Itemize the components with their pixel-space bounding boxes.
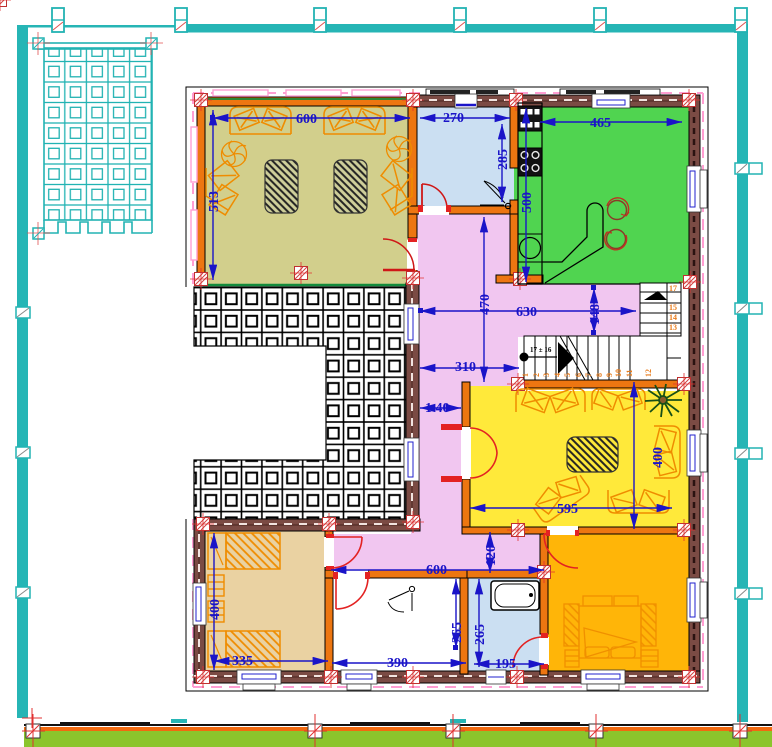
svg-text:513: 513	[207, 191, 222, 212]
svg-text:148: 148	[588, 304, 603, 325]
svg-text:9: 9	[605, 373, 614, 377]
svg-text:1: 1	[521, 373, 530, 377]
svg-text:470: 470	[478, 294, 493, 315]
svg-text:8: 8	[595, 373, 604, 377]
svg-text:465: 465	[590, 116, 611, 131]
svg-text:265: 265	[473, 624, 488, 645]
svg-text:11: 11	[625, 369, 634, 377]
svg-text:630: 630	[516, 305, 537, 320]
svg-text:4: 4	[553, 373, 562, 377]
svg-text:3: 3	[542, 373, 551, 377]
svg-text:7: 7	[584, 373, 593, 377]
svg-text:335: 335	[232, 654, 253, 669]
svg-text:400: 400	[651, 447, 666, 468]
svg-text:13: 13	[669, 323, 677, 332]
svg-text:285: 285	[496, 149, 511, 170]
svg-text:195: 195	[495, 657, 516, 672]
svg-text:17: 17	[669, 284, 677, 293]
svg-text:14: 14	[669, 313, 677, 322]
svg-text:17 ± 16: 17 ± 16	[530, 346, 552, 354]
svg-text:5: 5	[563, 373, 572, 377]
svg-text:600: 600	[296, 112, 317, 127]
svg-text:12: 12	[644, 369, 653, 377]
svg-text:500: 500	[520, 192, 535, 213]
svg-text:15: 15	[669, 303, 677, 312]
svg-text:595: 595	[557, 502, 578, 517]
svg-text:265: 265	[450, 622, 465, 643]
svg-text:390: 390	[387, 656, 408, 671]
svg-text:400: 400	[208, 599, 223, 620]
svg-text:600: 600	[426, 563, 447, 578]
svg-text:1 40: 1 40	[425, 401, 450, 416]
svg-text:6: 6	[574, 373, 583, 377]
svg-text:270: 270	[443, 111, 464, 126]
svg-text:2: 2	[532, 373, 541, 377]
svg-text:10: 10	[614, 369, 623, 377]
svg-text:120: 120	[484, 545, 499, 566]
svg-text:310: 310	[455, 360, 476, 375]
